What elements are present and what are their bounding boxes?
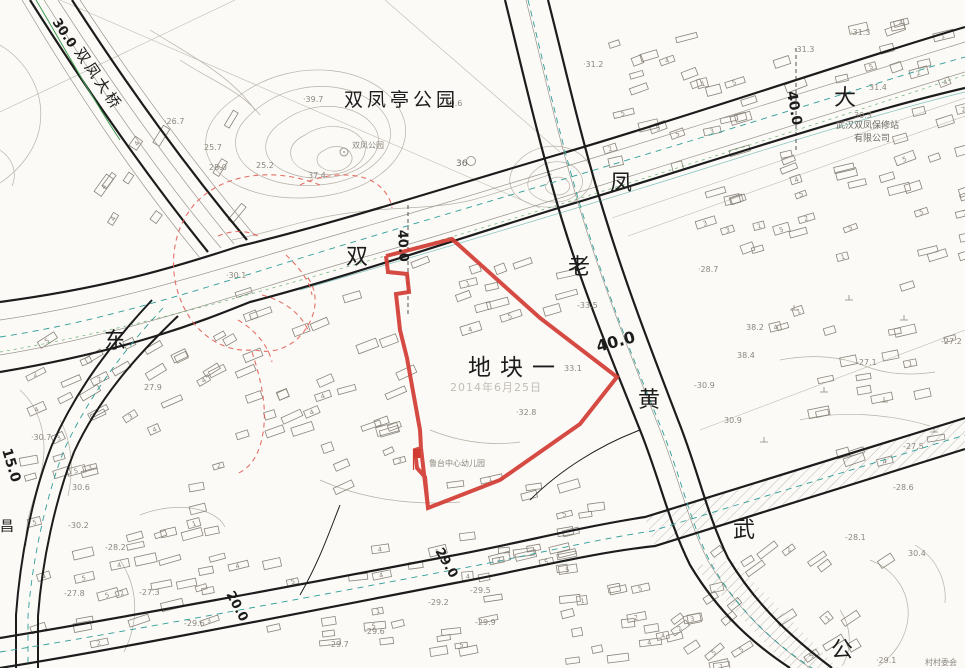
building-footprint [262, 558, 281, 570]
building-footprint [515, 550, 537, 562]
building-footprint [629, 70, 643, 79]
building-footprint [235, 288, 252, 298]
committee-label: 村村委会 [925, 657, 957, 667]
spot-elevation: -27.5 [903, 442, 924, 451]
building-footprint [61, 375, 81, 388]
spot-elevation: ·30.7 [31, 433, 51, 442]
spot-elevation: 38.2 [746, 323, 764, 332]
road-name-chang: 昌 [0, 519, 14, 535]
building-footprint [181, 527, 203, 540]
building-footprint [513, 258, 532, 270]
building-footprint [882, 350, 899, 361]
building-footprint [904, 180, 922, 193]
building-storey-digit: 4 [793, 176, 799, 185]
bottom-road-north-edge [0, 418, 965, 638]
building-footprint [161, 395, 183, 408]
building-footprint [441, 628, 461, 636]
building-storey-digit: 4 [308, 408, 315, 417]
building-footprint [607, 653, 629, 663]
spot-elevation: -28.2 [105, 543, 126, 552]
avenue-north-edge [0, 27, 965, 302]
spot-elevation: -27.3 [139, 588, 160, 597]
teal-line-s-road [528, 0, 812, 668]
spot-elevation: -29.2 [428, 598, 449, 607]
left-road-east-edge [38, 316, 178, 668]
map-labels: 东双凤大老黄武公昌双凤大桥双凤亭公园双凤公园地块一2014年6月25日30.04… [0, 16, 957, 667]
building-footprint [608, 156, 624, 168]
spot-elevation: -28.1 [845, 533, 866, 542]
building-footprint [555, 289, 577, 300]
spot-elevation: -29.6 [364, 627, 385, 636]
building-storey-digit: 5 [710, 648, 718, 657]
building-footprint [808, 551, 827, 566]
building-footprint [198, 566, 213, 575]
building-footprint [711, 545, 724, 557]
spot-elevation: -29.6 [184, 619, 205, 628]
marsh-symbols [760, 295, 938, 442]
building-footprint [741, 555, 754, 566]
building-storey-digit: 5 [104, 591, 110, 600]
building-storey-digit: 2 [960, 105, 965, 114]
building-footprint [447, 481, 464, 489]
building-storey-digit: 4 [467, 325, 473, 334]
building-footprint [561, 608, 575, 618]
building-footprint [333, 480, 354, 495]
building-storey-digit: 1 [795, 307, 801, 316]
building-storey-digit: 4 [377, 545, 382, 553]
spot-elevation: ·31.2 [583, 60, 603, 69]
spot-elevation: ·32.8 [516, 408, 536, 417]
building-footprint [391, 619, 404, 628]
building-storey-digit: 4 [773, 323, 779, 332]
road-name-feng: 凤 [610, 171, 632, 196]
building-footprint [571, 627, 582, 637]
building-footprint [374, 416, 389, 427]
building-storey-digit: 1 [719, 662, 724, 668]
building-storey-digit: 1 [580, 597, 585, 605]
spot-elevation: ·30.1 [226, 271, 246, 280]
building-storey-digit: 3 [725, 226, 731, 235]
building-footprint [789, 227, 807, 238]
building-footprint [134, 553, 157, 566]
building-footprint [705, 84, 721, 96]
building-footprint [176, 578, 197, 589]
building-footprint [396, 365, 417, 380]
building-footprint [310, 317, 329, 330]
shuangfeng-avenue [0, 27, 965, 372]
building-footprint [245, 391, 263, 404]
building-footprint [19, 455, 38, 466]
building-footprint [857, 385, 872, 395]
building-footprint [189, 482, 205, 492]
building-footprint [609, 585, 627, 595]
building-footprint [159, 555, 181, 566]
building-footprint [644, 624, 659, 634]
building-footprint [249, 307, 272, 320]
building-footprint [912, 106, 926, 116]
building-footprint [877, 553, 894, 568]
building-footprint [841, 610, 860, 626]
spot-elevation: ·31.3 [794, 45, 814, 54]
building-footprint [292, 323, 310, 336]
building-footprint [58, 392, 73, 404]
building-footprint [321, 616, 336, 626]
building-footprint [126, 531, 143, 542]
building-footprint [343, 291, 362, 303]
road-name-da: 大 [834, 86, 856, 111]
building-storey-digit: 5 [620, 109, 626, 118]
spot-elevations: ·39.7·39.637.425.728.025.2·30.1·26.7·31.… [31, 28, 962, 665]
spot-elevation: -30.2 [68, 521, 89, 530]
spot-elevation: 33.1 [564, 364, 582, 373]
building-footprint [321, 442, 334, 454]
building-storey-digit: 3 [690, 615, 696, 624]
spot-elevation: ·39.7 [303, 95, 323, 104]
spot-elevation: ·28.7 [698, 265, 718, 274]
building-storey-digit: 4 [664, 56, 671, 65]
building-footprint [900, 281, 915, 291]
building-footprint [705, 187, 726, 198]
building-footprint [484, 594, 503, 602]
map-canvas: 2534434235322455424154341453551525441521… [0, 0, 965, 668]
building-footprint [757, 541, 778, 559]
spot-elevation: ·31.3 [850, 28, 870, 37]
building-footprint [204, 526, 219, 536]
building-storey-digit: 5 [565, 566, 570, 575]
building-footprint [171, 349, 189, 363]
building-storey-digit: 1 [375, 607, 380, 616]
village-lane [530, 430, 640, 500]
building-storey-digit: 5 [32, 518, 38, 527]
building-storey-digit: 4 [378, 571, 384, 580]
utility-lines [0, 0, 965, 668]
spot-elevation: 30.6 [72, 483, 90, 492]
building-footprint [475, 302, 492, 313]
building-storey-digit: 2 [803, 214, 809, 223]
building-footprint [380, 637, 394, 645]
building-footprint [243, 310, 258, 322]
spot-elevation: -30.9 [694, 381, 715, 390]
building-footprint [72, 547, 94, 560]
spot-elevation: -29.9 [475, 618, 496, 627]
building-footprint [526, 483, 542, 491]
building-storey-digit: 2 [31, 370, 38, 379]
building-storey-digit: 1 [700, 80, 706, 89]
building-footprint [879, 172, 895, 183]
building-storey-digit: 3 [702, 219, 708, 228]
park-subname: 双凤公园 [352, 141, 384, 150]
building-footprint [494, 263, 507, 275]
building-footprint [914, 388, 931, 400]
building-footprint [856, 373, 871, 381]
building-footprint [235, 364, 256, 378]
building-storey-digit: 4 [33, 405, 40, 414]
building-footprint [917, 59, 931, 69]
building-footprint [291, 421, 314, 436]
road-width-40-a: 40.0 [394, 229, 411, 262]
building-storey-digit: 2 [96, 375, 103, 384]
building-storey-digit: 5 [731, 78, 737, 87]
bottom-road [0, 418, 965, 668]
building-footprint [361, 420, 381, 431]
spot-elevation: 38.4 [737, 351, 755, 360]
building-footprint [591, 645, 602, 654]
building-footprint [145, 363, 166, 380]
spot-elevation: ·29.1 [876, 656, 896, 665]
building-footprint [53, 453, 65, 461]
building-footprint [127, 541, 145, 550]
building-footprint [24, 473, 36, 481]
s-road-west-edge [505, 0, 790, 668]
building-storey-digit: 4 [660, 632, 666, 641]
building-storey-digit: 5 [81, 574, 87, 583]
road-name-shuang: 双 [346, 245, 368, 270]
hill-36-circle [467, 157, 476, 166]
company-label-line1: 武汉双凤保修站 [836, 119, 899, 131]
spot-elevation: 31.4 [869, 83, 887, 92]
building-footprint [777, 323, 789, 331]
building-footprint [745, 560, 765, 576]
building-footprint [892, 133, 908, 144]
building-footprint [236, 430, 250, 440]
spot-elevation: 37.4 [308, 171, 326, 180]
building-footprint [894, 324, 916, 337]
symbols [340, 148, 476, 470]
building-footprint [189, 503, 206, 515]
building-footprint [317, 374, 335, 388]
spot-elevation: -27.8 [64, 589, 85, 598]
bridge-west-edge [30, 0, 208, 252]
building-footprint [150, 211, 162, 224]
park-name: 双凤亭公园 [344, 89, 459, 111]
company-label-line2: 有限公司 [854, 132, 890, 144]
building-footprint [681, 67, 698, 80]
building-storey-digit: 5 [73, 467, 79, 476]
building-footprint [337, 384, 356, 394]
building-footprint [208, 364, 226, 377]
building-footprint [455, 290, 471, 301]
building-storey-digit: 5 [737, 645, 745, 654]
avenue-lane-line [0, 72, 965, 355]
spot-elevation: 30.3 [854, 111, 872, 120]
building-footprint [927, 249, 947, 262]
building-storey-digit: 1 [756, 222, 762, 231]
building-footprint [588, 502, 605, 512]
planning-map: 2534434235322455424154341453551525441521… [0, 0, 965, 668]
building-footprint [684, 640, 701, 654]
building-footprint [608, 40, 620, 49]
hill-36-label: 36 [456, 159, 468, 169]
road-width-15: 15.0 [0, 446, 24, 484]
spot-elevation: ·26.7 [164, 117, 184, 126]
building-storey-digit: 1 [191, 520, 197, 529]
building-footprints: 2534434235322455424154341453551525441521… [19, 18, 965, 668]
spot-elevation: 30.4 [908, 549, 926, 558]
building-storey-digit: 4 [151, 425, 158, 434]
building-footprint [579, 511, 592, 518]
building-footprint [411, 256, 430, 268]
building-footprint [459, 532, 475, 541]
building-footprint [263, 410, 276, 420]
building-storey-digit: 4 [647, 639, 652, 647]
hatched-embankment [645, 419, 965, 668]
road-width-40-b: 40.0 [783, 90, 805, 127]
spot-elevation: 25.7 [204, 143, 222, 152]
road-name-gong: 公 [831, 638, 853, 663]
building-footprint [543, 303, 561, 316]
building-storey-digit: 5 [507, 312, 513, 321]
road-name-dong: 东 [104, 329, 126, 354]
building-storey-digit: 4 [109, 215, 118, 223]
building-footprint [773, 56, 791, 69]
building-storey-digit: 2 [633, 613, 639, 622]
plot-name: 地块一 [468, 355, 564, 381]
building-footprint [958, 248, 965, 261]
building-footprint [485, 282, 499, 291]
building-storey-digit: 2 [119, 589, 125, 598]
building-footprint [890, 61, 903, 73]
road-width-30: 30.0 [49, 16, 79, 51]
building-storey-digit: 4 [100, 183, 109, 191]
green-line-bridge [36, 0, 120, 140]
building-storey-digit: 2 [96, 639, 102, 648]
building-storey-digit: 5 [868, 62, 874, 71]
building-footprint [730, 194, 746, 205]
pavilion-dot [343, 151, 345, 153]
building-storey-digit: 2 [785, 545, 793, 554]
building-storey-digit: 3 [127, 412, 135, 421]
spot-elevation: -29.5 [470, 586, 491, 595]
building-footprint [209, 553, 225, 562]
bridge-lane-line [58, 0, 234, 244]
building-storey-digit: 1 [465, 279, 471, 288]
roads [0, 0, 965, 668]
building-footprint [955, 143, 965, 157]
spot-elevation: 30.9 [724, 416, 742, 425]
building-footprint [265, 425, 285, 438]
building-footprint [928, 153, 940, 162]
building-footprint [437, 634, 451, 641]
date-watermark: 2014年6月25日 [450, 380, 542, 394]
spot-elevation: -33.5 [577, 301, 598, 310]
building-footprint [848, 179, 867, 189]
building-footprint [385, 386, 407, 400]
contour-lines [0, 30, 945, 666]
building-storey-digit: 2 [676, 624, 684, 633]
building-footprint [566, 657, 580, 664]
building-storey-digit: 5 [43, 336, 51, 345]
avenue-south-edge [0, 88, 965, 372]
building-storey-digit: 1 [840, 253, 846, 262]
spot-elevation: -27.2 [941, 337, 962, 346]
building-storey-digit: 5 [778, 225, 784, 234]
building-footprint [918, 246, 939, 257]
building-storey-digit: 4 [320, 392, 327, 401]
kindergarten-label: 鲁台中心幼儿园 [429, 458, 485, 468]
building-footprint [202, 587, 215, 595]
avenue-lane-line [0, 42, 965, 320]
building-footprint [818, 559, 832, 572]
road-name-huang: 黄 [638, 388, 660, 413]
revision-cloud [174, 175, 393, 474]
building-storey-digit: 5 [918, 208, 924, 217]
building-footprint [780, 163, 798, 175]
building-footprint [629, 83, 648, 95]
building-storey-digit: 5 [901, 155, 908, 164]
left-road [16, 300, 178, 668]
building-footprint [123, 172, 134, 184]
building-footprint [356, 338, 379, 354]
spot-elevation: 25.2 [256, 161, 274, 170]
building-footprint [267, 624, 281, 633]
spot-elevation: -28.6 [893, 483, 914, 492]
building-storey-digit: 5 [637, 584, 643, 593]
building-footprint [224, 110, 238, 128]
road-name-lao: 老 [568, 255, 590, 280]
building-footprint [557, 479, 580, 493]
building-storey-digit: 4 [235, 562, 241, 571]
building-footprint [871, 392, 893, 404]
building-footprint [823, 326, 836, 336]
spot-elevation: -27.1 [856, 358, 877, 367]
road-name-wu: 武 [733, 518, 755, 543]
building-footprint [281, 409, 303, 424]
building-footprint [379, 334, 398, 348]
laohuangwu-road [505, 0, 832, 668]
spot-elevation: -29.7 [328, 640, 349, 649]
building-footprint [818, 375, 834, 383]
building-footprint [383, 447, 394, 456]
building-footprint [676, 32, 698, 42]
building-storey-digit: 1 [908, 359, 914, 368]
spot-elevation: 28.0 [209, 163, 227, 172]
road-width-29: 29.0 [432, 546, 461, 581]
building-footprint [430, 646, 448, 657]
building-footprint [333, 459, 349, 472]
spot-elevation: 27.9 [144, 383, 162, 392]
building-footprint [322, 630, 335, 637]
building-footprint [936, 115, 955, 128]
building-footprint [621, 618, 635, 628]
building-footprint [959, 230, 965, 242]
shuangfeng-bridge [22, 0, 255, 258]
